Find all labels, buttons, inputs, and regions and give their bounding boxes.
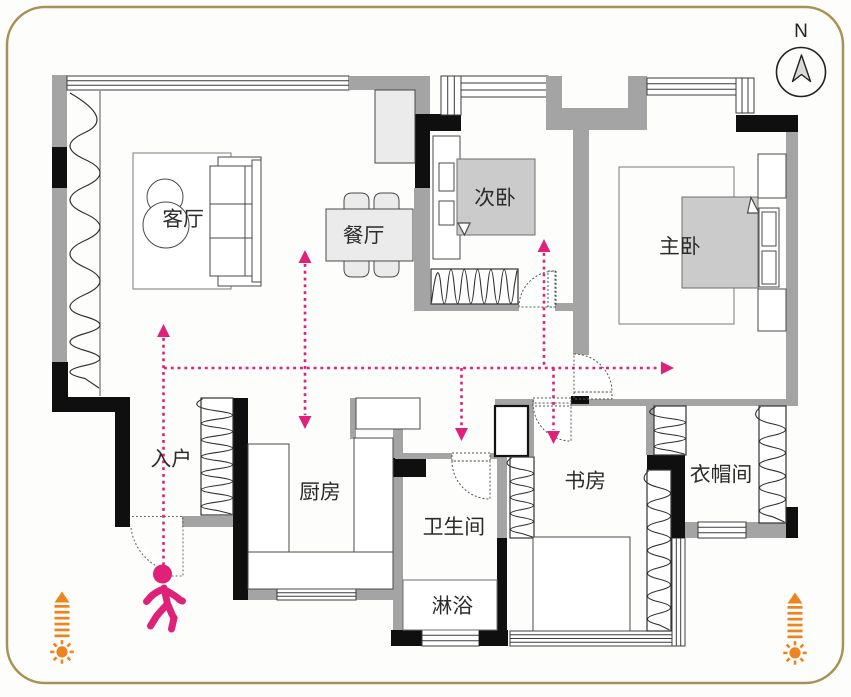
svg-text:N: N: [794, 21, 808, 42]
